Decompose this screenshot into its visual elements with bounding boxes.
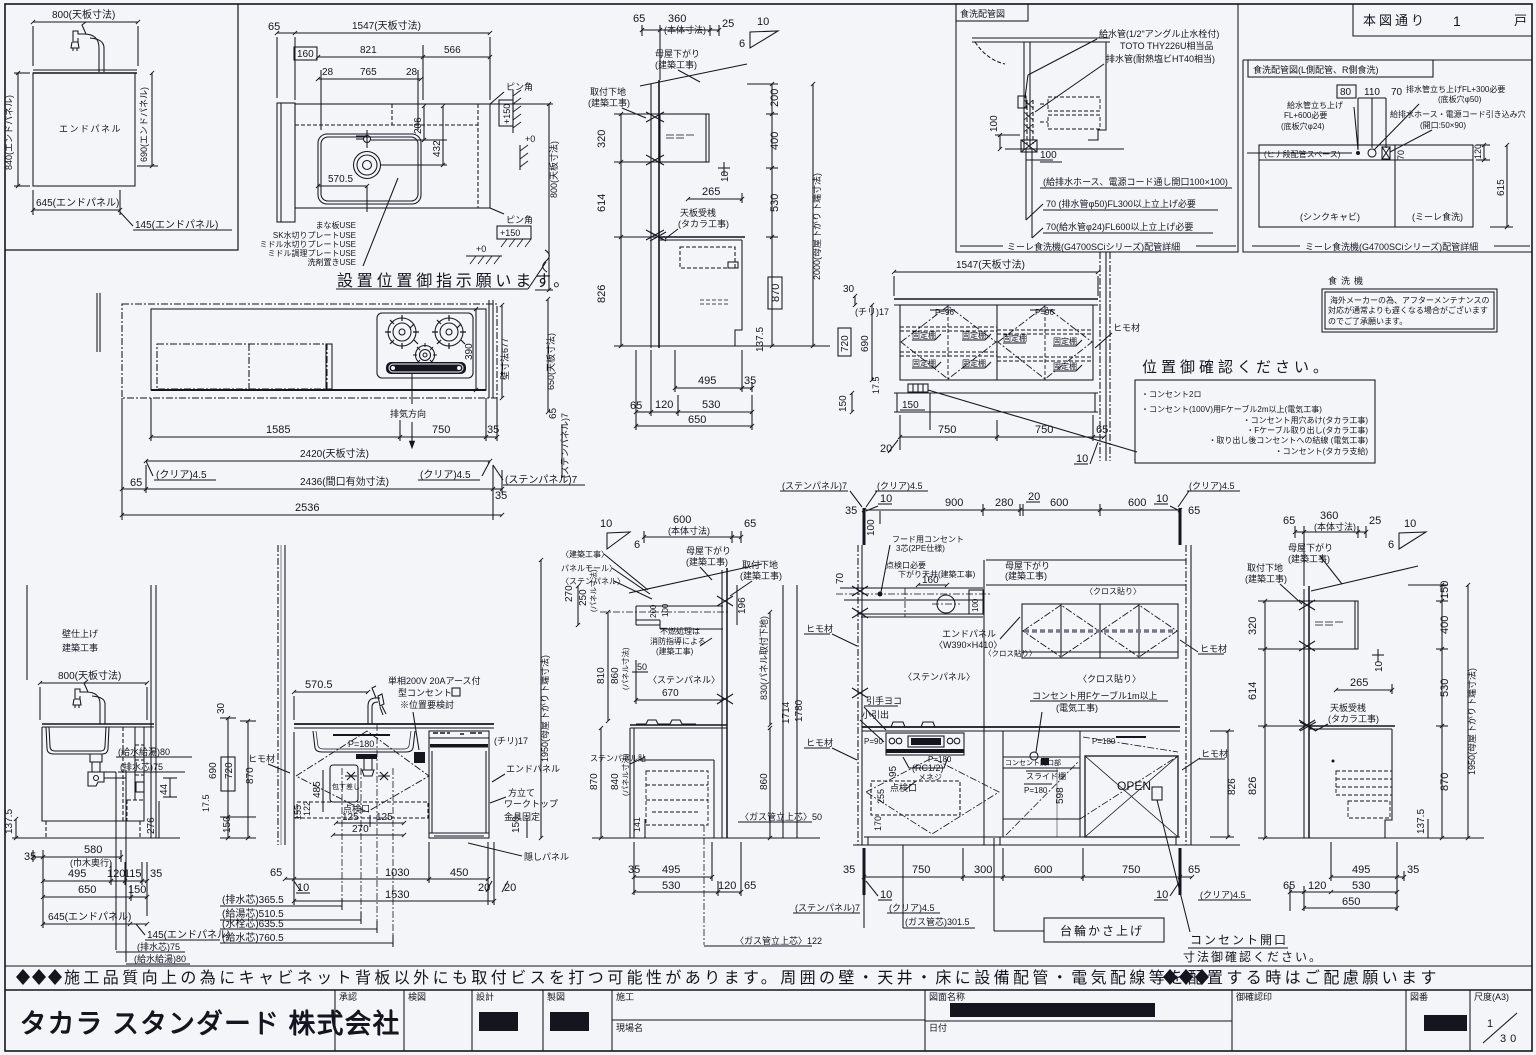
svg-text:取付下地: 取付下地	[1247, 562, 1283, 573]
svg-text:10: 10	[1404, 518, 1416, 530]
svg-text:FL+600必要: FL+600必要	[1284, 110, 1327, 120]
svg-text:170: 170	[873, 816, 883, 831]
svg-text:(建築工事): (建築工事)	[1005, 570, 1047, 581]
svg-text:ヒモ材: ヒモ材	[1200, 643, 1227, 654]
svg-text:265: 265	[702, 186, 720, 198]
svg-text:・コンセント2ロ: ・コンセント2ロ	[1141, 390, 1201, 399]
svg-text:排気方向: 排気方向	[390, 408, 426, 419]
svg-text:〈クロス貼り〉: 〈クロス貼り〉	[1078, 673, 1141, 684]
svg-text:食洗機: 食洗機	[1328, 275, 1367, 286]
svg-text:650(天板寸法): 650(天板寸法)	[545, 333, 556, 390]
svg-text:固定棚: 固定棚	[912, 330, 936, 340]
svg-text:65: 65	[268, 21, 280, 33]
svg-text:母屋下がり: 母屋下がり	[655, 48, 700, 59]
svg-text:・Fケーブル取り出し(タカラ工事): ・Fケーブル取り出し(タカラ工事)	[1246, 425, 1368, 435]
svg-text:(排水芯)75: (排水芯)75	[120, 761, 163, 772]
svg-text:28: 28	[322, 67, 334, 78]
svg-text:(底板穴φ24): (底板穴φ24)	[1281, 121, 1325, 131]
svg-text:120: 120	[1473, 144, 1483, 159]
svg-text:母屋下がり: 母屋下がり	[1005, 560, 1050, 571]
svg-text:対応が通常よりも遅くなる場合がございます: 対応が通常よりも遅くなる場合がございます	[1328, 305, 1488, 315]
svg-text:17.5: 17.5	[201, 794, 211, 812]
svg-text:母屋下がり: 母屋下がり	[686, 545, 731, 556]
svg-text:(建築工事): (建築工事)	[656, 646, 694, 656]
svg-text:エンドパネル: エンドパネル	[506, 764, 560, 774]
svg-text:50: 50	[637, 662, 647, 672]
svg-text:650: 650	[78, 884, 96, 896]
svg-text:まな板USE: まな板USE	[316, 220, 356, 230]
svg-text:排水管(耐熱塩ビHT40相当): 排水管(耐熱塩ビHT40相当)	[1106, 53, 1215, 64]
svg-text:615: 615	[1496, 179, 1507, 196]
svg-text:821: 821	[360, 45, 377, 56]
svg-text:(給水芯)760.5: (給水芯)760.5	[222, 931, 284, 944]
svg-text:(排水芯)75: (排水芯)75	[137, 941, 180, 952]
svg-text:530: 530	[769, 194, 781, 212]
svg-text:単相200V 20Aアース付: 単相200V 20Aアース付	[388, 675, 481, 686]
svg-text:(水栓芯)635.5: (水栓芯)635.5	[222, 917, 284, 930]
svg-text:(RC1/2): (RC1/2)	[912, 763, 944, 773]
svg-text:ミーレ食洗機(G4700SCiシリーズ)配管詳細: ミーレ食洗機(G4700SCiシリーズ)配管詳細	[1007, 241, 1180, 252]
svg-text:100: 100	[989, 115, 1000, 132]
svg-text:ヒモ材: ヒモ材	[248, 753, 275, 764]
svg-text:137.5: 137.5	[1416, 809, 1427, 834]
svg-text:70 (排水管φ50)FL300以上立上げ必要: 70 (排水管φ50)FL300以上立上げ必要	[1046, 198, 1196, 209]
svg-text:(パネル寸法): (パネル寸法)	[588, 569, 598, 612]
svg-text:図面名称: 図面名称	[929, 991, 965, 1002]
svg-text:天板受桟: 天板受桟	[1330, 702, 1366, 713]
svg-text:1: 1	[1453, 13, 1461, 29]
svg-text:1950(母屋下がり下端寸法): 1950(母屋下がり下端寸法)	[539, 655, 550, 762]
svg-text:35: 35	[495, 490, 507, 502]
svg-text:2536: 2536	[295, 502, 319, 514]
svg-text:(本体寸法): (本体寸法)	[664, 24, 706, 35]
svg-text:110: 110	[1364, 87, 1380, 98]
svg-text:固定棚: 固定棚	[962, 330, 986, 340]
svg-text:598: 598	[1055, 787, 1066, 804]
svg-text:SK水切りプレートUSE: SK水切りプレートUSE	[273, 230, 356, 240]
svg-text:750: 750	[938, 424, 956, 436]
svg-text:566: 566	[444, 45, 461, 56]
svg-text:1714: 1714	[781, 701, 792, 724]
svg-text:(クリア)4.5: (クリア)4.5	[156, 469, 207, 481]
svg-text:(建築工事): (建築工事)	[1245, 573, 1287, 584]
svg-text:6: 6	[634, 539, 640, 551]
svg-text:〈クロス貼り〉: 〈クロス貼り〉	[984, 648, 1037, 658]
svg-text:〈ガス管立上芯〉50: 〈ガス管立上芯〉50	[740, 811, 822, 822]
svg-text:100: 100	[971, 598, 980, 612]
svg-text:35: 35	[1407, 864, 1419, 876]
svg-text:P=90: P=90	[864, 737, 883, 746]
svg-text:母屋下がり: 母屋下がり	[1288, 542, 1333, 553]
svg-text:ミーレ食洗機(G4700SCiシリーズ)配管詳細: ミーレ食洗機(G4700SCiシリーズ)配管詳細	[1305, 241, 1478, 252]
svg-text:65: 65	[630, 400, 642, 412]
svg-text:120: 120	[718, 880, 736, 892]
svg-text:小引出: 小引出	[862, 709, 889, 720]
svg-text:1547(天板寸法): 1547(天板寸法)	[352, 19, 421, 32]
svg-text:530: 530	[1352, 880, 1370, 892]
svg-text:65: 65	[548, 407, 559, 419]
svg-text:(クリア)4.5: (クリア)4.5	[889, 903, 935, 913]
svg-text:650: 650	[688, 414, 706, 426]
svg-text:276: 276	[146, 817, 157, 834]
svg-text:720: 720	[224, 762, 235, 779]
svg-text:3芯(2PE仕様): 3芯(2PE仕様)	[896, 543, 945, 553]
svg-text:360: 360	[668, 13, 686, 25]
svg-text:ワークトップ: ワークトップ	[504, 799, 558, 809]
svg-text:・コンセント(タカラ支給): ・コンセント(タカラ支給)	[1275, 446, 1369, 456]
svg-text:570.5: 570.5	[328, 174, 353, 185]
svg-text:現場名: 現場名	[616, 1022, 643, 1033]
svg-text:530: 530	[1439, 679, 1451, 697]
svg-text:(本体寸法): (本体寸法)	[668, 525, 710, 536]
svg-text:(タカラ工事): (タカラ工事)	[1328, 713, 1379, 724]
svg-text:10: 10	[1156, 493, 1168, 505]
svg-text:寸法御確認ください。: 寸法御確認ください。	[1183, 949, 1323, 964]
svg-text:OPEN: OPEN	[1117, 779, 1151, 793]
svg-text:750: 750	[1122, 864, 1140, 876]
svg-text:645(エンドパネル): 645(エンドパネル)	[36, 197, 119, 209]
svg-text:670: 670	[662, 688, 679, 699]
svg-text:28: 28	[406, 67, 418, 78]
svg-text:270: 270	[352, 824, 369, 835]
svg-text:10: 10	[1076, 453, 1088, 465]
svg-text:・取り出し後コンセントへの結線 (電気工事): ・取り出し後コンセントへの結線 (電気工事)	[1208, 435, 1368, 445]
svg-text:スライド棚: スライド棚	[1026, 771, 1066, 781]
svg-text:給排水ホース・電源コード引き込み穴: 給排水ホース・電源コード引き込み穴	[1390, 109, 1526, 119]
svg-text:食洗配管図(L側配管、R側食洗): 食洗配管図(L側配管、R側食洗)	[1253, 64, 1379, 75]
svg-text:〈ステンパネル〉: 〈ステンパネル〉	[648, 675, 720, 685]
svg-text:810: 810	[596, 667, 607, 684]
svg-text:エンドパネル: エンドパネル	[59, 124, 122, 134]
svg-text:日付: 日付	[929, 1023, 947, 1033]
svg-text:施工: 施工	[616, 991, 634, 1002]
svg-text:2000(母屋下がり下端寸法): 2000(母屋下がり下端寸法)	[811, 173, 822, 280]
svg-text:金具固定: 金具固定	[504, 811, 540, 822]
svg-text:750: 750	[1035, 424, 1053, 436]
svg-text:天板受桟: 天板受桟	[680, 207, 716, 218]
svg-text:35: 35	[744, 375, 756, 387]
svg-text:65: 65	[130, 477, 142, 489]
svg-text:30: 30	[843, 284, 855, 295]
svg-text:600: 600	[1128, 497, 1146, 509]
svg-text:1547(天板寸法): 1547(天板寸法)	[956, 258, 1025, 271]
svg-text:150: 150	[222, 816, 233, 833]
svg-text:エンドパネル: エンドパネル	[942, 629, 996, 639]
svg-text:2436(間口有効寸法): 2436(間口有効寸法)	[300, 475, 389, 488]
svg-text:450: 450	[450, 867, 468, 879]
svg-text:(パネル寸法): (パネル寸法)	[620, 753, 630, 796]
svg-text:826: 826	[596, 285, 608, 303]
svg-text:830(パネル取付下地): 830(パネル取付下地)	[758, 616, 769, 700]
svg-text:・コンセント用穴あけ(タカラ工事): ・コンセント用穴あけ(タカラ工事)	[1243, 415, 1369, 425]
svg-text:870: 870	[245, 767, 256, 784]
svg-text:580: 580	[84, 844, 102, 856]
svg-text:614: 614	[1247, 682, 1259, 700]
svg-text:10: 10	[1156, 889, 1168, 901]
svg-text:20: 20	[1028, 491, 1040, 503]
svg-text:600: 600	[1050, 497, 1068, 509]
svg-text:65: 65	[270, 867, 282, 879]
svg-text:引手ヨコ: 引手ヨコ	[866, 695, 902, 706]
svg-text:20: 20	[880, 443, 892, 455]
svg-text:コンセント用Fケーブル1m以上: コンセント用Fケーブル1m以上	[1032, 690, 1157, 701]
svg-text:(シンクキャビ): (シンクキャビ)	[1300, 212, 1360, 222]
svg-text:承認: 承認	[339, 991, 357, 1002]
svg-text:65: 65	[1188, 864, 1200, 876]
svg-text:10: 10	[600, 518, 612, 530]
svg-text:(ミーレ食洗): (ミーレ食洗)	[1412, 211, 1463, 222]
svg-text:コンセント開口: コンセント開口	[1190, 933, 1288, 947]
svg-text:1530: 1530	[385, 889, 409, 901]
svg-text:(底板穴φ50): (底板穴φ50)	[1438, 94, 1482, 104]
svg-text:(給水給湯)80: (給水給湯)80	[134, 953, 186, 964]
svg-text:720: 720	[840, 335, 851, 352]
svg-text:(建築工事): (建築工事)	[740, 570, 782, 581]
svg-text:35: 35	[843, 864, 855, 876]
svg-text:120: 120	[107, 868, 125, 880]
svg-text:洗剤置きUSE: 洗剤置きUSE	[308, 257, 356, 267]
svg-text:800(天板寸法): 800(天板寸法)	[548, 141, 559, 198]
svg-text:ヒモ材: ヒモ材	[1113, 322, 1140, 333]
svg-text:70: 70	[1396, 150, 1406, 160]
svg-text:製図: 製図	[547, 991, 565, 1002]
svg-text:ピン角: ピン角	[506, 81, 533, 92]
svg-text:900: 900	[945, 497, 963, 509]
svg-text:〈ガス管立上芯〉122: 〈ガス管立上芯〉122	[735, 935, 822, 946]
svg-text:65: 65	[1283, 515, 1295, 527]
svg-text:530: 530	[662, 880, 680, 892]
svg-text:タカラ スタンダード 株式会社: タカラ スタンダード 株式会社	[19, 1008, 400, 1038]
svg-text:614: 614	[596, 194, 608, 212]
svg-text:25: 25	[1369, 515, 1381, 527]
svg-text:17.5: 17.5	[871, 376, 881, 394]
svg-text:2420(天板寸法): 2420(天板寸法)	[300, 447, 369, 460]
svg-text:(ステンパネル)7: (ステンパネル)7	[782, 481, 847, 491]
svg-text:10: 10	[880, 493, 892, 505]
svg-text:530: 530	[702, 399, 720, 411]
svg-text:(給水給湯)80: (給水給湯)80	[118, 746, 170, 757]
svg-text:80: 80	[1340, 87, 1352, 98]
svg-text:70: 70	[835, 572, 846, 584]
svg-text:TOTO THY226U相当品: TOTO THY226U相当品	[1120, 40, 1214, 51]
svg-text:265: 265	[1350, 677, 1368, 689]
svg-text:〈クロス貼り〉: 〈クロス貼り〉	[1085, 586, 1141, 596]
svg-text:(巾木奥行): (巾木奥行)	[70, 857, 112, 868]
svg-text:(排水芯)365.5: (排水芯)365.5	[222, 893, 284, 906]
svg-text:750: 750	[912, 864, 930, 876]
svg-text:(ガス管芯)301.5: (ガス管芯)301.5	[905, 916, 970, 927]
svg-text:ミドル調理プレートUSE: ミドル調理プレートUSE	[268, 248, 356, 258]
svg-text:(クリア)4.5: (クリア)4.5	[1189, 481, 1235, 491]
svg-text:(クリア)4.5: (クリア)4.5	[1200, 890, 1246, 900]
svg-text:125: 125	[342, 812, 359, 823]
svg-text:排水管立ち上げFL+300必要: 排水管立ち上げFL+300必要	[1406, 84, 1505, 94]
svg-text:(建築工事): (建築工事)	[655, 59, 697, 70]
svg-text:ヒモ材: ヒモ材	[806, 737, 833, 748]
svg-text:320: 320	[596, 130, 608, 148]
svg-text:〈建築工事〉: 〈建築工事〉	[561, 549, 609, 559]
svg-text:固定棚: 固定棚	[912, 358, 936, 368]
svg-text:360: 360	[1320, 510, 1338, 522]
svg-text:6: 6	[1388, 539, 1394, 551]
svg-text:200: 200	[649, 604, 658, 618]
svg-text:(給排水ホース、電源コード通し開口100×100): (給排水ホース、電源コード通し開口100×100)	[1043, 176, 1228, 187]
svg-text:ヒモ材: ヒモ材	[806, 623, 833, 634]
svg-text:(タカラ工事): (タカラ工事)	[678, 218, 729, 229]
svg-text:固定棚: 固定棚	[962, 358, 986, 368]
svg-text:1585: 1585	[266, 424, 290, 436]
svg-text:320: 320	[1247, 617, 1259, 635]
svg-text:150: 150	[511, 816, 522, 833]
svg-text:1: 1	[1487, 1018, 1493, 1030]
svg-text:400: 400	[1439, 616, 1451, 634]
svg-text:尺度(A3): 尺度(A3)	[1474, 991, 1509, 1002]
svg-text:給水管(1/2"アングル止水栓付): 給水管(1/2"アングル止水栓付)	[1099, 28, 1219, 39]
svg-text:P=180: P=180	[1024, 786, 1048, 795]
svg-text:250: 250	[578, 589, 589, 606]
svg-text:コンセント開口部: コンセント開口部	[1005, 758, 1061, 767]
svg-text:のでご了承願います。: のでご了承願います。	[1328, 316, 1407, 326]
svg-text:不燃処理は: 不燃処理は	[660, 626, 700, 636]
svg-text:870: 870	[770, 284, 782, 302]
svg-text:206: 206	[413, 117, 424, 134]
svg-text:65: 65	[1188, 505, 1200, 517]
svg-text:750: 750	[432, 424, 450, 436]
svg-text:645(エンドパネル): 645(エンドパネル)	[48, 911, 131, 923]
svg-text:(クリア)4.5: (クリア)4.5	[420, 469, 471, 481]
svg-text:70: 70	[1391, 87, 1403, 98]
svg-text:(電気工事): (電気工事)	[1056, 702, 1098, 713]
svg-text:御確認印: 御確認印	[1236, 991, 1272, 1002]
svg-text:495: 495	[662, 864, 680, 876]
svg-text:95: 95	[888, 765, 899, 777]
svg-text:20: 20	[504, 882, 516, 894]
svg-text:800(天板寸法): 800(天板寸法)	[52, 8, 115, 21]
svg-text:+150: +150	[500, 228, 520, 238]
svg-text:設計: 設計	[476, 991, 494, 1002]
svg-text:826: 826	[1247, 777, 1259, 795]
svg-text:800(天板寸法): 800(天板寸法)	[58, 669, 121, 682]
svg-text:(ステンパネル)7: (ステンパネル)7	[505, 474, 578, 486]
svg-text:消防指導による: 消防指導による	[650, 636, 706, 646]
svg-text:施工品質向上の為にキャビネット背板以外にも取付ビスを打つ可能: 施工品質向上の為にキャビネット背板以外にも取付ビスを打つ可能性があります。周囲の…	[64, 968, 1440, 987]
svg-text:25: 25	[722, 18, 734, 30]
svg-text:・コンセント(100V)用Fケーブル2m以上(電気工事): ・コンセント(100V)用Fケーブル2m以上(電気工事)	[1141, 404, 1322, 414]
svg-text:※位置要検討: ※位置要検討	[400, 699, 454, 710]
svg-text:270: 270	[564, 585, 575, 602]
svg-text:826: 826	[1227, 778, 1238, 795]
svg-text:固定棚: 固定棚	[1053, 336, 1077, 346]
svg-text:P=180: P=180	[1092, 737, 1116, 746]
svg-text:495: 495	[1352, 864, 1370, 876]
svg-text:137.5: 137.5	[755, 327, 766, 352]
svg-text:固定棚: 固定棚	[1053, 361, 1077, 371]
svg-text:200: 200	[769, 89, 781, 107]
svg-text:100: 100	[866, 519, 877, 536]
svg-text:食洗配管図: 食洗配管図	[960, 8, 1005, 19]
svg-text:35: 35	[845, 505, 857, 517]
svg-text:フード用コンセント: フード用コンセント	[892, 535, 964, 544]
svg-text:10: 10	[757, 16, 769, 28]
svg-text:1030: 1030	[385, 867, 409, 879]
svg-text:495: 495	[698, 375, 716, 387]
svg-text:840(エンドパネル): 840(エンドパネル)	[4, 95, 14, 170]
svg-text:44: 44	[159, 783, 170, 795]
svg-text:196: 196	[737, 597, 748, 614]
svg-text:ステンパネル貼: ステンパネル貼	[590, 753, 646, 763]
svg-text:690(エンドパネル): 690(エンドパネル)	[139, 87, 149, 162]
svg-text:1780: 1780	[794, 699, 805, 722]
svg-text:ピン角: ピン角	[506, 214, 533, 225]
svg-text:(建築工事): (建築工事)	[588, 97, 630, 108]
svg-text:860: 860	[610, 667, 621, 684]
svg-text:280: 280	[995, 497, 1013, 509]
svg-text:(ステンパネル)7: (ステンパネル)7	[795, 903, 860, 913]
svg-text:765: 765	[360, 67, 377, 78]
svg-text:150: 150	[1439, 581, 1451, 599]
svg-text:150: 150	[838, 395, 849, 412]
svg-text:本図通り: 本図通り	[1363, 13, 1427, 28]
svg-text:70(給水管φ24)FL600以上立上げ必要: 70(給水管φ24)FL600以上立上げ必要	[1046, 221, 1193, 232]
svg-text:150: 150	[902, 400, 919, 411]
svg-text:建築工事: 建築工事	[62, 642, 98, 653]
svg-text:65: 65	[633, 13, 645, 25]
svg-text:495: 495	[68, 868, 86, 880]
svg-text:65: 65	[744, 518, 756, 530]
svg-text:65: 65	[744, 880, 756, 892]
svg-text:(本体寸法): (本体寸法)	[1314, 521, 1356, 532]
svg-text:35: 35	[24, 851, 36, 863]
svg-text:690: 690	[860, 335, 871, 352]
svg-text:120: 120	[655, 399, 673, 411]
svg-text:(建築工事): (建築工事)	[1288, 553, 1330, 564]
svg-text:145(エンドパネル): 145(エンドパネル)	[147, 929, 230, 941]
svg-text:包丁差し: 包丁差し	[332, 782, 360, 791]
svg-text:120: 120	[1308, 880, 1326, 892]
svg-text:100: 100	[1040, 150, 1057, 161]
svg-text:300: 300	[974, 864, 992, 876]
svg-text:150: 150	[128, 884, 146, 896]
svg-text:給水管立ち上げ: 給水管立ち上げ	[1287, 100, 1343, 110]
svg-text:30: 30	[1500, 1033, 1520, 1045]
svg-text:+150: +150	[502, 104, 512, 124]
svg-text:検図: 検図	[408, 991, 426, 1002]
svg-text:485: 485	[312, 781, 323, 798]
svg-text:432: 432	[432, 140, 443, 157]
svg-text:ヒモ材: ヒモ材	[1201, 748, 1228, 759]
svg-text:(開口:50×90): (開口:50×90)	[1420, 121, 1466, 130]
svg-text:122: 122	[302, 801, 312, 816]
svg-text:570.5: 570.5	[305, 679, 333, 691]
svg-text:型コンセント: 型コンセント	[398, 688, 452, 698]
svg-text:30: 30	[216, 702, 227, 714]
svg-text:840: 840	[610, 773, 621, 790]
svg-text:10: 10	[880, 889, 892, 901]
svg-text:海外メーカーの為、アフターメンテナンスの: 海外メーカーの為、アフターメンテナンスの	[1330, 295, 1490, 305]
svg-text:650: 650	[1342, 896, 1360, 908]
svg-text:35: 35	[628, 864, 640, 876]
svg-text:35: 35	[487, 424, 499, 436]
svg-text:600: 600	[673, 514, 691, 526]
svg-text:(ヒナ段配管スペース): (ヒナ段配管スペース)	[1264, 149, 1341, 159]
svg-text:位置御確認ください。: 位置御確認ください。	[1142, 359, 1332, 376]
svg-text:65: 65	[1283, 880, 1295, 892]
svg-text:方立て: 方立て	[508, 787, 535, 798]
svg-text:壁寸法677: 壁寸法677	[499, 338, 510, 380]
svg-text:6: 6	[739, 38, 745, 50]
svg-text:取付下地: 取付下地	[590, 86, 626, 97]
svg-text:ミドル水切りプレートUSE: ミドル水切りプレートUSE	[260, 239, 356, 249]
